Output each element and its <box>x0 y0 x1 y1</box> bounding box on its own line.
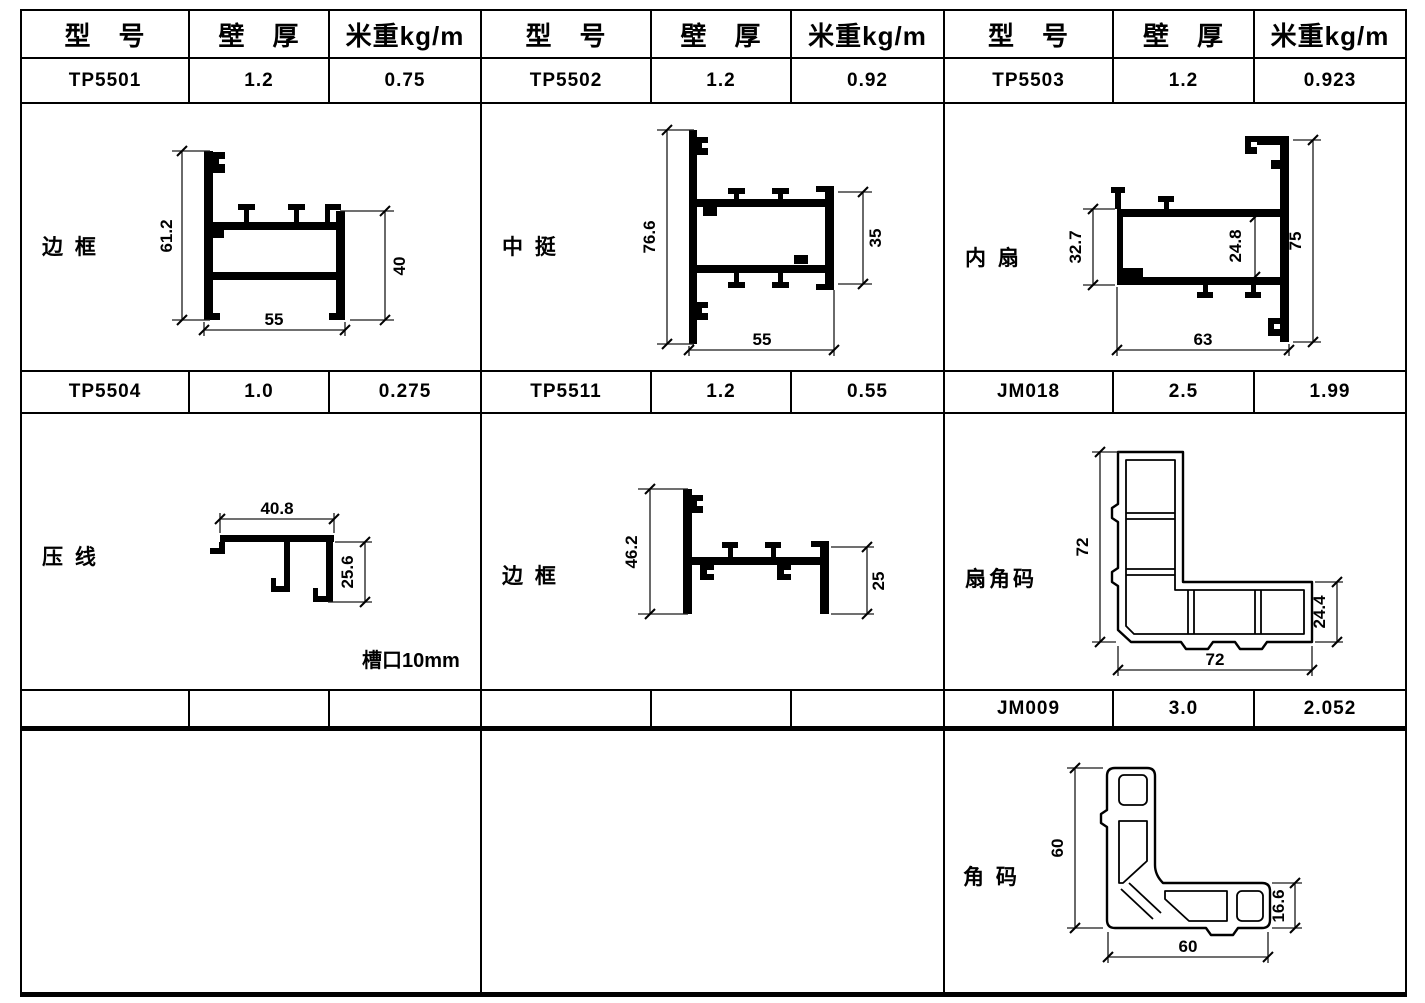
weight-cell: 0.75 <box>330 59 482 104</box>
wall-cell: 1.0 <box>190 372 330 414</box>
bead-profile-drawing: 40.8 25.6 <box>22 414 480 687</box>
model-cell: TP5502 <box>482 59 652 104</box>
dim-right-label: 25.6 <box>338 555 357 588</box>
header-weight-2: 米重kg/m <box>792 11 945 59</box>
dim-right-label: 35 <box>866 229 885 248</box>
wall-cell: 3.0 <box>1114 691 1255 731</box>
header-wall-label: 壁 厚 <box>218 16 299 53</box>
diagram-cell-empty-2 <box>482 731 945 992</box>
wall-value: 1.2 <box>1169 70 1198 92</box>
wall-value: 1.2 <box>706 70 735 92</box>
diagram-cell-sash-corner-bracket: 扇角码 <box>945 414 1405 691</box>
mullion-profile-drawing: 76.6 35 55 <box>482 104 943 368</box>
sash-corner-bracket-shape <box>1112 452 1312 649</box>
header-model-1: 型 号 <box>22 11 190 59</box>
frame2-profile-drawing: 46.2 25 <box>482 414 943 687</box>
dim-right-label: 75 <box>1286 232 1305 251</box>
wall-value: 1.0 <box>244 381 273 403</box>
spec-table: 型 号 壁 厚 米重kg/m 型 号 壁 厚 米重kg/m 型 号 壁 厚 米重… <box>20 9 1407 997</box>
diagram-cell-frame-2: 边 框 <box>482 414 945 691</box>
diagram-cell-inner-sash: 内 扇 <box>945 104 1405 372</box>
diagram-cell-mullion: 中 挺 <box>482 104 945 372</box>
dim-right-label: 16.6 <box>1269 889 1288 922</box>
dim-height-label: 72 <box>1073 538 1092 557</box>
header-model-label: 型 号 <box>988 16 1069 53</box>
model-value: TP5511 <box>530 381 602 403</box>
weight-cell: 0.92 <box>792 59 945 104</box>
dim-width-label: 60 <box>1179 937 1198 956</box>
bead-profile-shape <box>210 535 334 602</box>
weight-cell: 1.99 <box>1255 372 1405 414</box>
corner-bracket-shape <box>1101 768 1270 935</box>
mullion-profile-shape <box>689 130 834 344</box>
header-wall-label: 壁 厚 <box>680 16 761 53</box>
diagram-cell-empty-1 <box>22 731 482 992</box>
dim-width-label: 55 <box>265 310 284 329</box>
model-cell: JM009 <box>945 691 1114 731</box>
header-wall-label: 壁 厚 <box>1143 16 1224 53</box>
weight-cell <box>330 691 482 731</box>
inner-sash-profile-drawing: 32.7 24.8 75 63 <box>945 104 1405 368</box>
model-value: TP5503 <box>992 70 1065 92</box>
wall-value: 1.2 <box>244 70 273 92</box>
dim-width-label: 72 <box>1206 650 1225 669</box>
wall-cell: 1.2 <box>652 372 792 414</box>
model-cell: TP5501 <box>22 59 190 104</box>
header-weight-label: 米重kg/m <box>346 16 465 53</box>
dim-width-label: 55 <box>753 330 772 349</box>
dim-width-label: 40.8 <box>260 499 293 518</box>
weight-cell: 2.052 <box>1255 691 1405 731</box>
wall-cell: 1.2 <box>1114 59 1255 104</box>
wall-cell <box>652 691 792 731</box>
dim-height-label: 61.2 <box>157 219 176 252</box>
profile-spec-sheet: 型 号 壁 厚 米重kg/m 型 号 壁 厚 米重kg/m 型 号 壁 厚 米重… <box>0 0 1425 1003</box>
model-value: JM018 <box>997 381 1060 403</box>
wall-cell: 2.5 <box>1114 372 1255 414</box>
model-cell: TP5503 <box>945 59 1114 104</box>
dim-height-label: 46.2 <box>622 535 641 568</box>
dim-inner-label: 24.8 <box>1226 229 1245 262</box>
header-model-label: 型 号 <box>525 16 606 53</box>
dimension-lines <box>1067 763 1302 963</box>
dimension-lines <box>638 484 874 619</box>
dim-right-label: 40 <box>390 257 409 276</box>
weight-value: 0.75 <box>385 70 426 92</box>
wall-value: 1.2 <box>706 381 735 403</box>
corner-bracket-drawing: 60 60 16.6 <box>945 731 1405 988</box>
diagram-cell-bead: 压 线 槽口10mm 40.8 25.6 <box>22 414 482 691</box>
header-weight-3: 米重kg/m <box>1255 11 1405 59</box>
header-wall-2: 壁 厚 <box>652 11 792 59</box>
frame2-profile-shape <box>683 489 829 614</box>
wall-value: 3.0 <box>1169 698 1198 720</box>
dim-width-label: 63 <box>1194 330 1213 349</box>
diagram-cell-frame: 边 框 <box>22 104 482 372</box>
model-cell: TP5511 <box>482 372 652 414</box>
weight-value: 0.923 <box>1304 70 1357 92</box>
wall-cell: 1.2 <box>190 59 330 104</box>
weight-cell: 0.55 <box>792 372 945 414</box>
model-cell: JM018 <box>945 372 1114 414</box>
weight-value: 0.275 <box>379 381 432 403</box>
header-model-label: 型 号 <box>64 16 145 53</box>
inner-sash-profile-shape <box>1111 136 1289 342</box>
dim-right-label: 24.4 <box>1310 595 1329 629</box>
wall-value: 2.5 <box>1169 381 1198 403</box>
header-model-3: 型 号 <box>945 11 1114 59</box>
wall-cell: 1.2 <box>652 59 792 104</box>
weight-cell: 0.923 <box>1255 59 1405 104</box>
wall-cell <box>190 691 330 731</box>
header-weight-1: 米重kg/m <box>330 11 482 59</box>
model-cell <box>22 691 190 731</box>
model-cell <box>482 691 652 731</box>
header-wall-3: 壁 厚 <box>1114 11 1255 59</box>
dim-left-label: 32.7 <box>1066 230 1085 263</box>
header-weight-label: 米重kg/m <box>1271 16 1390 53</box>
header-weight-label: 米重kg/m <box>808 16 927 53</box>
model-value: TP5502 <box>530 70 603 92</box>
frame-profile-drawing: 61.2 40 55 <box>22 104 480 368</box>
diagram-cell-corner-bracket: 角 码 <box>945 731 1405 992</box>
weight-value: 0.55 <box>847 381 888 403</box>
model-cell: TP5504 <box>22 372 190 414</box>
header-wall-1: 壁 厚 <box>190 11 330 59</box>
dim-height-label: 76.6 <box>640 220 659 253</box>
dim-right-label: 25 <box>869 572 888 591</box>
dim-height-label: 60 <box>1048 839 1067 858</box>
sash-corner-bracket-drawing: 72 72 24.4 <box>945 414 1405 687</box>
model-value: TP5501 <box>69 70 142 92</box>
weight-value: 0.92 <box>847 70 888 92</box>
weight-value: 1.99 <box>1310 381 1351 403</box>
weight-value: 2.052 <box>1304 698 1357 720</box>
model-value: TP5504 <box>69 381 142 403</box>
weight-cell: 0.275 <box>330 372 482 414</box>
header-model-2: 型 号 <box>482 11 652 59</box>
model-value: JM009 <box>997 698 1060 720</box>
weight-cell <box>792 691 945 731</box>
frame-profile-shape <box>204 151 345 320</box>
